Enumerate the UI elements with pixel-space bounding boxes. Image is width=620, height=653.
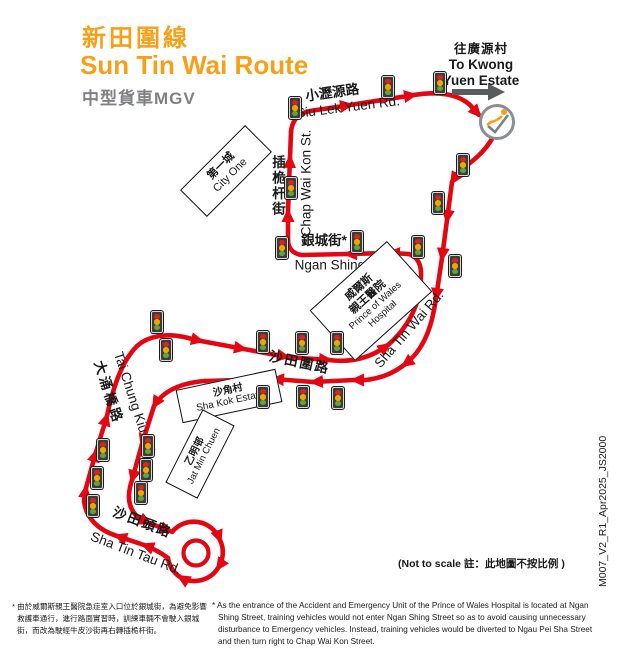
traffic-light-icon xyxy=(135,482,147,504)
traffic-light-icon xyxy=(140,459,152,481)
traffic-light-icon xyxy=(87,495,99,517)
route-path xyxy=(84,93,493,581)
route-map-page: 新田圍線 Sun Tin Wai Route 中型貨車MGV 往廣源村 To K… xyxy=(0,0,620,653)
destination-zh: 往廣源村 xyxy=(438,42,524,57)
route-title-en: Sun Tin Wai Route xyxy=(80,50,308,81)
destination-label: 往廣源村 To Kwong Yuen Estate xyxy=(438,42,524,89)
document-id: M007_V2_R1_Apr2025_JS2000 xyxy=(597,455,611,587)
traffic-light-icon xyxy=(332,387,344,409)
traffic-light-icon xyxy=(296,332,308,354)
driving-test-centre-logo xyxy=(481,106,514,139)
vehicle-type-label: 中型貨車MGV xyxy=(82,84,196,109)
traffic-light-icon xyxy=(331,332,343,354)
route-title-zh: 新田圍線 xyxy=(82,18,190,53)
roundabout-icon xyxy=(184,541,209,566)
footnote-zh: * 由於威爾斯親王醫院急症室入口位於銀城街，為避免影響救護車通行，進行路面實習時… xyxy=(12,601,213,636)
road-label-ngan-shing-zh: 銀城街* xyxy=(301,229,347,249)
traffic-light-icon xyxy=(297,386,309,408)
footnote-en: * As the entrance of the Accident and Em… xyxy=(212,600,602,648)
traffic-light-icon xyxy=(285,177,297,199)
traffic-light-icon xyxy=(457,154,469,176)
destination-en-line1: To Kwong xyxy=(438,57,524,73)
traffic-light-icon xyxy=(351,231,363,253)
road-label-chap-wai-kon-en: Chap Wai Kon St. xyxy=(299,130,314,237)
traffic-light-icon xyxy=(432,192,444,214)
traffic-light-icon xyxy=(97,439,109,461)
destination-en-line2: Yuen Estate xyxy=(438,73,524,89)
not-to-scale-note: (Not to scale 註：此地圖不按比例 ) xyxy=(398,556,565,571)
traffic-light-icon xyxy=(142,435,154,457)
traffic-light-icon xyxy=(289,97,301,119)
traffic-light-icon xyxy=(276,237,288,259)
traffic-light-icon xyxy=(382,76,394,98)
traffic-light-icon xyxy=(412,236,424,258)
traffic-light-icon xyxy=(257,331,269,353)
road-label-chap-wai-kon-zh: 插桅杆街 xyxy=(267,155,287,217)
traffic-light-icon xyxy=(257,386,269,408)
traffic-light-icon xyxy=(449,255,461,277)
traffic-light-icon xyxy=(91,467,103,489)
traffic-light-icon xyxy=(151,311,163,333)
traffic-light-icon xyxy=(434,72,446,94)
traffic-light-icon xyxy=(160,339,172,361)
